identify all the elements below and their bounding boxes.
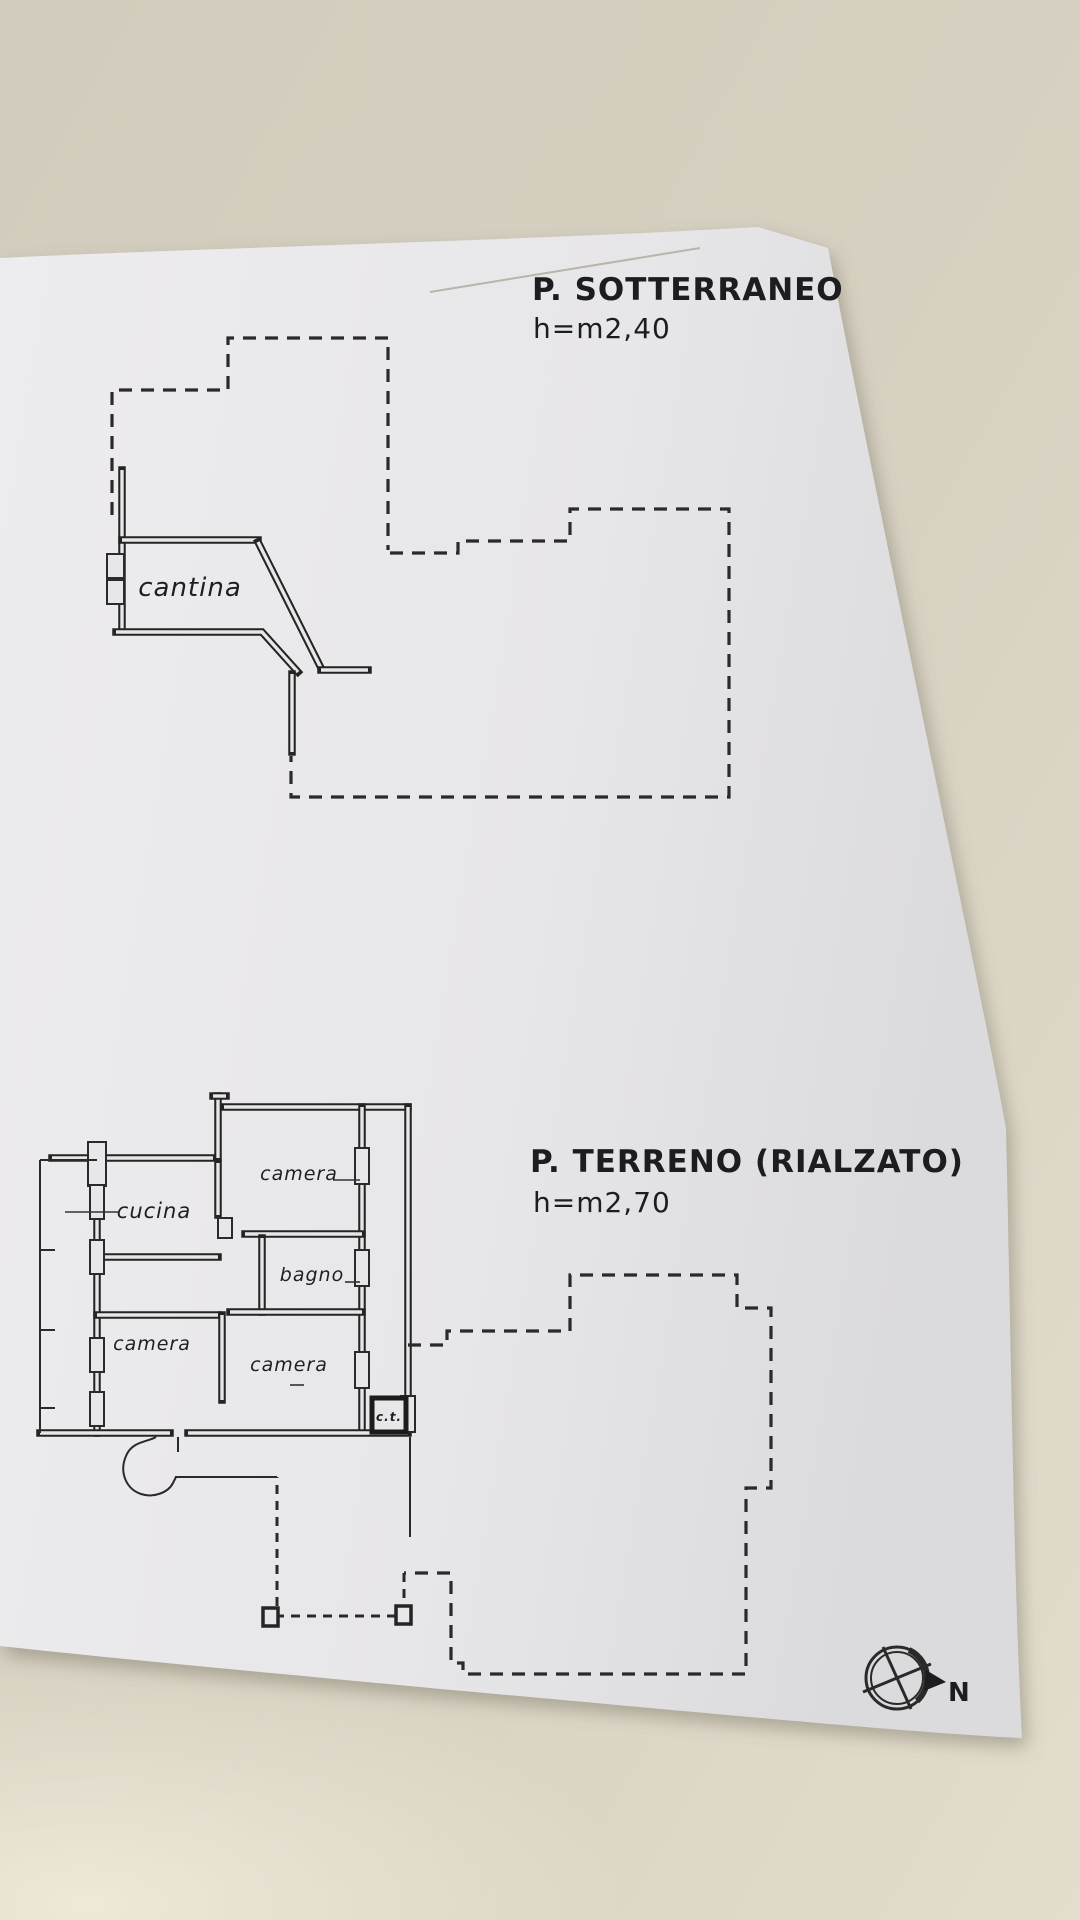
gf-window-left-4 bbox=[90, 1392, 104, 1426]
gf-room-label-ct: c.t. bbox=[376, 1410, 402, 1424]
gf-room-label-camera-top: camera bbox=[260, 1163, 338, 1185]
paper-sheet bbox=[0, 227, 1022, 1738]
gf-room-label-bagno: bagno bbox=[280, 1264, 344, 1286]
gf-terrace-post-left bbox=[263, 1608, 278, 1626]
basement-window-2 bbox=[107, 580, 124, 604]
floorplan-svg: cantina P. SOTTERRANEO h=m2,40 bbox=[0, 0, 1080, 1920]
basement-height-note: h=m2,40 bbox=[533, 312, 671, 345]
basement-title: P. SOTTERRANEO bbox=[532, 272, 844, 308]
gf-pillar bbox=[88, 1142, 106, 1186]
gf-room-label-camera-left: camera bbox=[113, 1333, 191, 1355]
gf-window-right-2 bbox=[355, 1250, 369, 1286]
gf-terrace-post-right bbox=[396, 1606, 411, 1624]
gf-window-left-3 bbox=[90, 1338, 104, 1372]
gf-window-left-1 bbox=[90, 1185, 104, 1219]
floor-plan-photo: cantina P. SOTTERRANEO h=m2,40 bbox=[0, 0, 1080, 1920]
gf-room-label-cucina: cucina bbox=[117, 1199, 191, 1223]
gf-window-right-3 bbox=[355, 1352, 369, 1388]
gf-window-left-2 bbox=[90, 1240, 104, 1274]
gf-door-niche bbox=[218, 1218, 232, 1238]
ground-title: P. TERRENO (RIALZATO) bbox=[530, 1144, 964, 1180]
ground-height-note: h=m2,70 bbox=[533, 1186, 671, 1219]
basement-window-1 bbox=[107, 554, 124, 578]
basement-room-label-cantina: cantina bbox=[138, 573, 242, 603]
gf-room-label-camera-mid: camera bbox=[250, 1354, 328, 1376]
compass-north-label: N bbox=[948, 1678, 970, 1708]
gf-window-right-1 bbox=[355, 1148, 369, 1184]
